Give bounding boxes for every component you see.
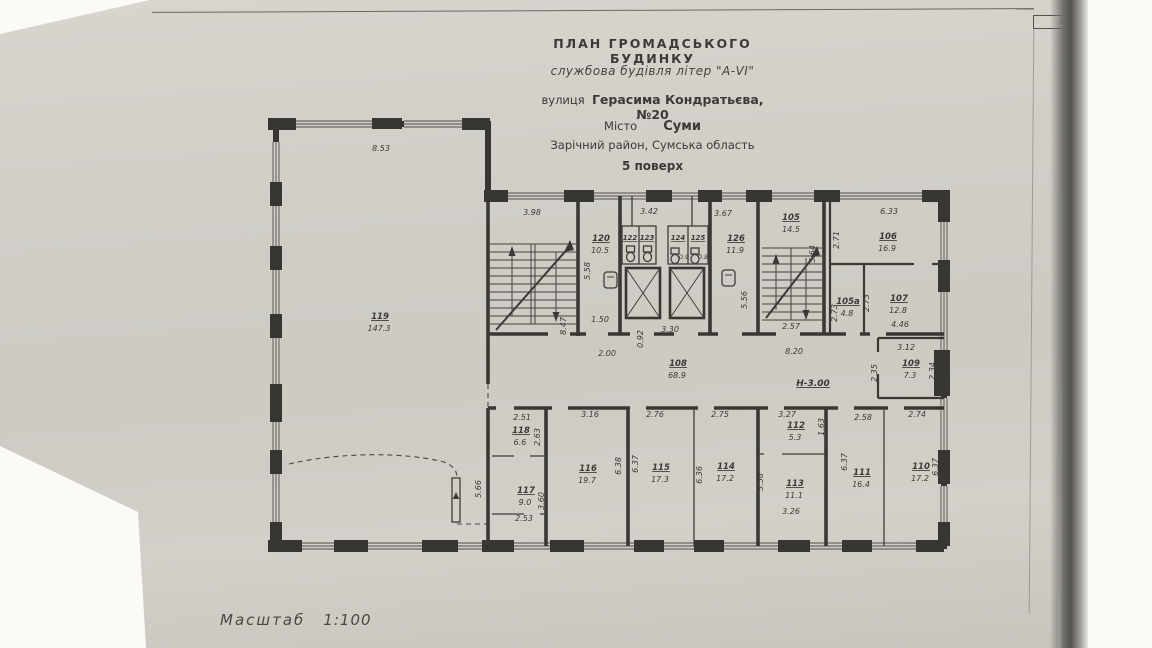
window [664, 542, 696, 551]
wall-pier [938, 190, 950, 222]
dim-stair2-side: 5.64 [808, 245, 817, 263]
wall-pier [550, 540, 584, 552]
dim-r113-side: 3.58 [756, 473, 765, 491]
dim-r117-bottom: 2.53 [515, 514, 533, 523]
toilet-icon-123 [644, 246, 652, 262]
window [272, 474, 281, 524]
wall-pier [634, 540, 664, 552]
window [506, 192, 566, 201]
dim-r117-side: 3.60 [537, 492, 546, 510]
room-114-area: 17.2 [716, 474, 734, 483]
dim-r116-side: 6.38 [614, 457, 623, 475]
dashed-guide [289, 455, 488, 524]
dim-elev-side: 0.92 [636, 330, 645, 348]
room-116-number: 116 [579, 464, 597, 474]
dim-r115-top: 2.76 [646, 410, 664, 419]
wall-pier [268, 118, 296, 130]
room-106-number: 106 [879, 232, 897, 242]
room-105a-area: 4.8 [841, 309, 854, 318]
plan-title: ПЛАН ГРОМАДСЬКОГО БУДИНКУ [535, 36, 770, 66]
wall-pier [270, 450, 282, 474]
room-114-number: 114 [717, 462, 735, 472]
room-109-number: 109 [902, 359, 920, 369]
room-113-area: 11.1 [785, 491, 803, 500]
elevator-shaft-2 [670, 268, 704, 318]
toilet-icon-124 [671, 248, 679, 264]
wall-pier [268, 540, 302, 552]
dim-bay126-top: 3.67 [714, 209, 733, 218]
window [300, 542, 336, 551]
dim-corr-right: 8.20 [785, 347, 803, 356]
window [458, 542, 484, 551]
window [672, 192, 700, 201]
wall-pier [334, 540, 368, 552]
wall-pier [422, 540, 458, 552]
dim-stair1-side: 8.47 [559, 316, 568, 335]
dim-r120-top: 3.42 [640, 207, 658, 216]
dim-r109-top: 3.12 [897, 343, 915, 352]
room-108-number: 108 [669, 359, 687, 369]
dim-r113-bottom: 3.26 [782, 507, 800, 516]
room-120-area: 10.5 [591, 246, 609, 255]
dim-r109-right: 2.34 [928, 362, 937, 380]
staircase-left [490, 240, 576, 330]
room-125-number: 125 [691, 234, 706, 242]
window [368, 542, 424, 551]
dim-r105a-side: 2.73 [830, 304, 839, 322]
room-107-area: 12.8 [889, 306, 907, 315]
room-119-area: 147.3 [368, 324, 391, 333]
room-107-number: 107 [890, 294, 908, 304]
dim-r119-top: 8.53 [372, 144, 390, 153]
wall-pier [462, 118, 490, 130]
room-105a-number: 105а [836, 297, 860, 307]
room-109-area: 7.3 [904, 371, 917, 380]
photo-edge-shadow [1050, 0, 1088, 648]
room-115-number: 115 [652, 463, 670, 473]
window [272, 206, 281, 248]
dim-r119-stub: 5.66 [474, 480, 483, 498]
wall-pier [646, 190, 672, 202]
room-105-number: 105 [782, 213, 800, 223]
floor-plan-drawing: 119 147.3 120 10.5 122 123 124 0.9 125 0… [250, 95, 970, 575]
room-123-number: 123 [640, 234, 655, 242]
window [772, 192, 816, 201]
wall-pier [814, 190, 840, 202]
room-117-number: 117 [517, 486, 535, 496]
dim-r115-side: 6.37 [631, 454, 640, 473]
wall-pier [938, 522, 950, 546]
dim-r120-door: 1.50 [591, 315, 609, 324]
dim-r112-side: 1.63 [817, 418, 826, 436]
room-111-area: 16.4 [852, 480, 870, 489]
scale-value: 1:100 [323, 611, 371, 629]
window [722, 192, 748, 201]
window [940, 292, 949, 350]
scale-label: Масштаб [220, 611, 305, 629]
wall-pier [270, 246, 282, 270]
room-122-number: 122 [623, 234, 638, 242]
room-118-area: 6.6 [514, 438, 527, 447]
room-120-number: 120 [592, 234, 610, 244]
dim-r106-top: 6.33 [880, 207, 898, 216]
wall-pier [270, 314, 282, 338]
dim-r109-left: 2.35 [870, 364, 879, 382]
elevator-shaft-1 [626, 268, 660, 318]
window [272, 422, 281, 452]
dim-stair1-top: 3.98 [523, 208, 541, 217]
room-106-area: 16.9 [878, 244, 896, 253]
dim-r111-side: 6.37 [840, 452, 849, 471]
window [272, 142, 281, 184]
elevation-note: Н-3.00 [796, 379, 829, 389]
room-119-number: 119 [371, 312, 389, 322]
room-112-number: 112 [787, 421, 805, 431]
dim-corr-left: 2.00 [598, 349, 616, 358]
room-124-number: 124 [671, 234, 686, 242]
dim-r114-side: 6.36 [695, 466, 704, 484]
toilet-icon-122 [627, 246, 635, 262]
window [940, 486, 949, 524]
photo-of-plan: 8 ПЛАН ГРОМАДСЬКОГО БУДИНКУ службова буд… [0, 0, 1152, 648]
dim-r111-top: 2.58 [854, 413, 872, 422]
room-105-area: 14.5 [782, 225, 800, 234]
window [940, 398, 949, 452]
dim-r118-top: 2.51 [513, 413, 531, 422]
room-108-area: 68.9 [668, 371, 686, 380]
room-111-number: 111 [853, 468, 871, 478]
dim-r120-side: 5.58 [583, 262, 592, 280]
room-113-number: 113 [786, 479, 804, 489]
room-125-area: 0.8 [698, 253, 708, 261]
dim-r118-side: 2.63 [533, 428, 542, 446]
dim-r110-side: 6.37 [931, 457, 940, 476]
dim-r107-bottom: 4.46 [891, 320, 909, 329]
room-126-number: 126 [727, 234, 745, 244]
room-110-area: 17.2 [911, 474, 929, 483]
sink-icon-126 [722, 270, 735, 286]
dim-stair2-right: 2.71 [832, 231, 841, 249]
room-126-area: 11.9 [726, 246, 744, 255]
dim-r107-side: 2.73 [862, 294, 871, 312]
window [840, 192, 924, 201]
scale-note: Масштаб1:100 [220, 611, 372, 629]
building-subtitle: службова будівля літер "А-VI" [535, 64, 770, 78]
room-117-area: 9.0 [519, 498, 532, 507]
room-116-area: 19.7 [578, 476, 597, 485]
dim-r110-top: 2.74 [908, 410, 926, 419]
wall-pier [694, 540, 724, 552]
dim-elev-top: 3.30 [661, 325, 679, 334]
dim-stair2-bottom: 2.57 [782, 322, 801, 331]
wall-pier [270, 182, 282, 206]
window [272, 270, 281, 316]
dim-r112-top: 3.27 [778, 410, 797, 419]
wall-pier [842, 540, 872, 552]
room-110-number: 110 [912, 462, 930, 472]
window [940, 222, 949, 262]
sink-icon-120 [604, 272, 617, 288]
window [272, 338, 281, 386]
wall-pier [372, 118, 402, 129]
room-124-area: 0.9 [679, 253, 689, 261]
room-118-number: 118 [512, 426, 530, 436]
window [872, 542, 920, 551]
window [296, 120, 372, 129]
dim-r116-top: 3.16 [581, 410, 599, 419]
wall-pier [270, 384, 282, 422]
wall-pier [778, 540, 810, 552]
room-115-area: 17.3 [651, 475, 669, 484]
window [724, 542, 780, 551]
dim-r126-side: 5.56 [740, 291, 749, 309]
dim-r114-top: 2.75 [711, 410, 729, 419]
window [404, 120, 466, 129]
room-112-area: 5.3 [789, 433, 802, 442]
